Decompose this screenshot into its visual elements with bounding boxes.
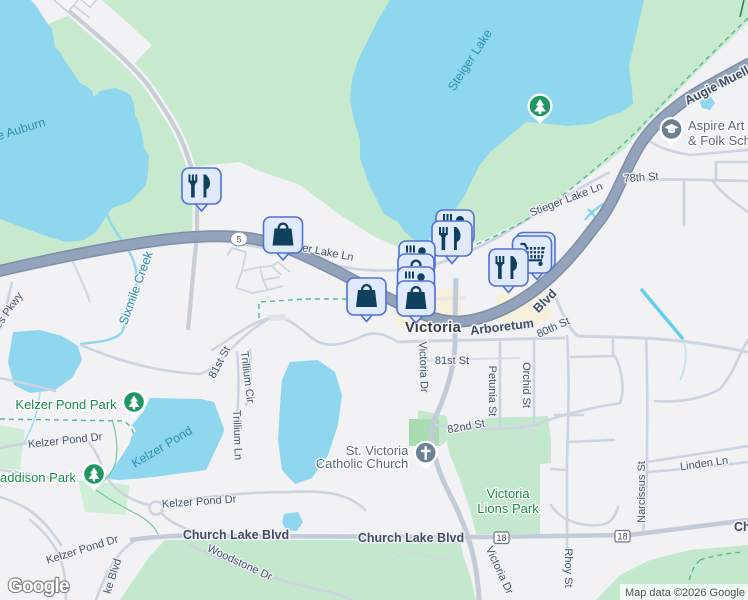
svg-text:Petunia St: Petunia St xyxy=(486,366,498,417)
svg-text:Ch: Ch xyxy=(734,520,748,534)
svg-text:Lions Park: Lions Park xyxy=(477,501,539,516)
svg-text:18: 18 xyxy=(496,533,506,543)
svg-text:81st St: 81st St xyxy=(435,355,469,367)
svg-text:5: 5 xyxy=(236,235,241,246)
svg-text:Rhoy St: Rhoy St xyxy=(562,548,574,587)
svg-text:Victoria: Victoria xyxy=(486,486,530,501)
svg-text:& Folk Sch: & Folk Sch xyxy=(688,133,748,148)
svg-text:Kelzer Pond Park: Kelzer Pond Park xyxy=(15,397,117,412)
svg-text:addison Park: addison Park xyxy=(0,470,76,485)
svg-text:Victoria: Victoria xyxy=(405,320,462,336)
svg-text:Church Lake Blvd: Church Lake Blvd xyxy=(183,528,289,542)
svg-text:Trillium Ln: Trillium Ln xyxy=(230,410,244,461)
svg-text:Aspire Art: Aspire Art xyxy=(688,118,745,133)
svg-text:Catholic Church: Catholic Church xyxy=(316,456,409,471)
svg-text:Narcissus St: Narcissus St xyxy=(636,461,648,523)
svg-text:18: 18 xyxy=(617,532,627,542)
svg-text:Orchid St: Orchid St xyxy=(520,362,532,408)
svg-text:Victoria Dr: Victoria Dr xyxy=(416,341,430,393)
svg-text:Map data ©2026 Google: Map data ©2026 Google xyxy=(625,587,745,599)
svg-text:Church Lake Blvd: Church Lake Blvd xyxy=(358,531,464,545)
svg-text:Google: Google xyxy=(8,576,69,597)
svg-text:78th St: 78th St xyxy=(623,171,659,185)
